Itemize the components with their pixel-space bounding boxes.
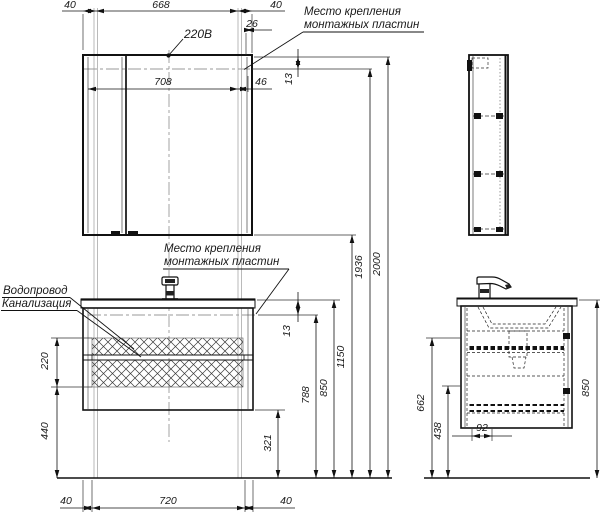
dim-top-right-inset: 26: [245, 18, 258, 30]
sewerage-label: Канализация: [2, 298, 71, 310]
dim-hatch-to-floor: 440: [39, 422, 51, 440]
door-handle-right: [128, 231, 138, 235]
plumbing-access-hatch-upper: [92, 338, 243, 355]
dim-top-right-offset: 40: [270, 0, 282, 11]
plumbing-access-hatch-lower: [92, 360, 243, 387]
dim-bottom-left-offset: 40: [60, 495, 72, 507]
dim-top-span: 668: [152, 0, 170, 11]
mounting-plates-label-mid-line1: Место крепления: [164, 243, 261, 255]
installation-drawing: 40 668 40 26 708 46 13 13 220 440 321 78…: [0, 0, 600, 514]
dim-top-left-offset: 40: [64, 0, 76, 11]
dim-mirror-plate-gap: 13: [283, 73, 295, 85]
dim-counter-height: 850: [318, 379, 330, 397]
dim-bottom-span: 720: [159, 495, 177, 507]
dim-plates-span: 708: [154, 76, 172, 88]
dim-drain-offset: 92: [476, 422, 488, 434]
dim-vanity-plate-gap: 13: [281, 325, 293, 337]
power-label: 220В: [183, 27, 212, 41]
dim-bottom-right-offset: 40: [280, 495, 292, 507]
vanity-side: [457, 277, 577, 428]
dim-side-upper-height: 662: [415, 394, 427, 412]
mounting-plates-label-top-line2: монтажных пластин: [304, 19, 420, 31]
paper-background: [0, 0, 600, 514]
dim-side-lower-height: 438: [432, 422, 444, 440]
dim-plates-right-offset: 46: [255, 76, 267, 88]
mounting-plates-label-top-line1: Место крепления: [304, 6, 401, 18]
dim-mirror-bottom-height: 1150: [335, 346, 347, 369]
dim-hatch-height: 220: [39, 352, 51, 371]
dim-side-counter-height: 850: [580, 379, 592, 397]
dim-plate-height: 788: [300, 386, 312, 404]
dim-mirror-top-height: 2000: [371, 252, 383, 277]
dim-mirror-plate-height: 1936: [353, 255, 365, 279]
mounting-plates-label-mid-line2: монтажных пластин: [164, 256, 280, 268]
technical-drawing-page: 40 668 40 26 708 46 13 13 220 440 321 78…: [0, 0, 600, 514]
dim-cabinet-bottom-height: 321: [262, 434, 274, 452]
drawer-slide-upper: [467, 344, 564, 352]
drawer-slide-lower: [467, 404, 564, 412]
water-supply-label: Водопровод: [3, 285, 67, 297]
door-handle-left: [111, 231, 120, 235]
